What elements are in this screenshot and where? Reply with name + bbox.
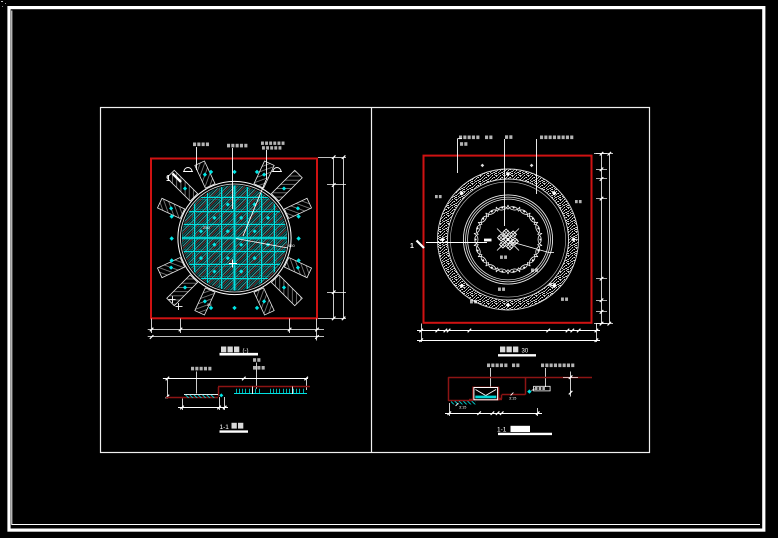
svg-text:25: 25 [207,302,212,307]
svg-text:1: 1 [410,243,414,250]
svg-text:450: 450 [288,243,295,248]
svg-text:3:15: 3:15 [509,397,516,401]
svg-text:1: 1 [166,174,171,183]
svg-text:1-1: 1-1 [220,424,230,431]
svg-text:1-1: 1-1 [497,427,507,434]
svg-text:3:15: 3:15 [459,406,466,410]
svg-text:30: 30 [522,349,529,355]
svg-text:250: 250 [203,225,210,230]
